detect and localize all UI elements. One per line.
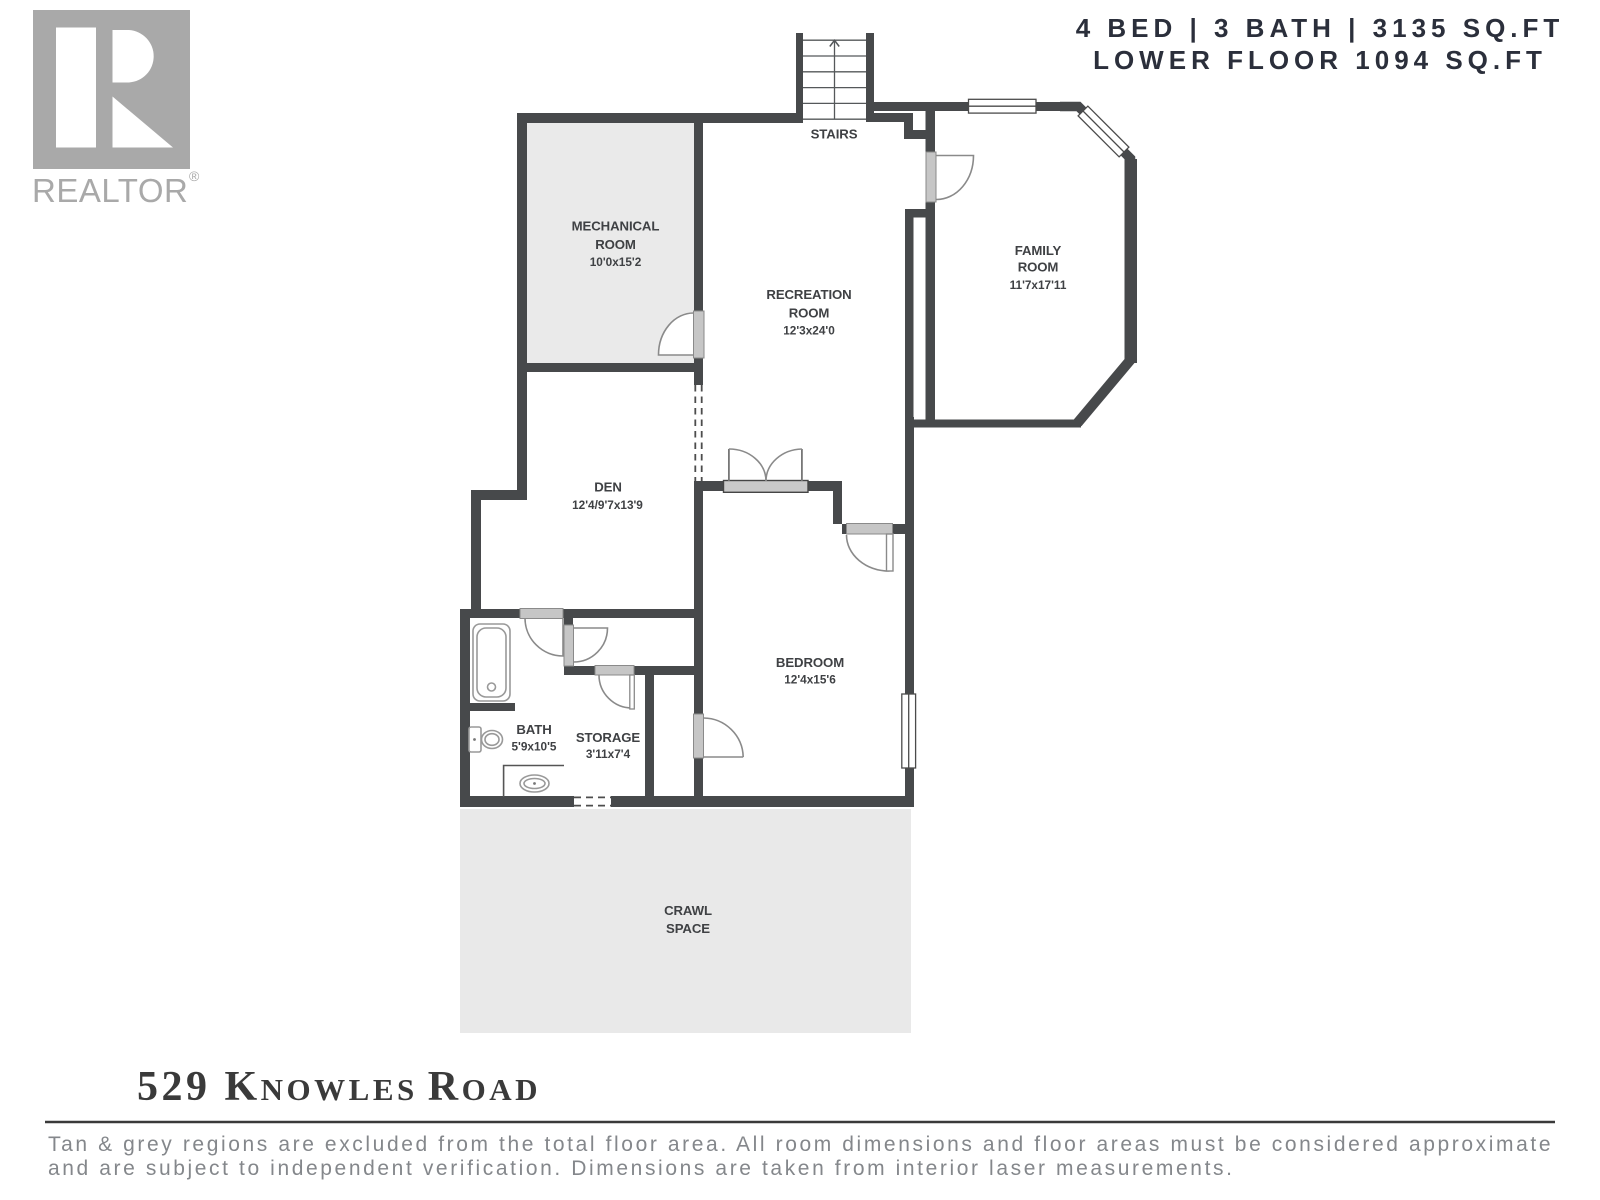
svg-text:REALTOR: REALTOR [32, 172, 188, 209]
svg-text:LOWER FLOOR 1094 SQ.FT: LOWER FLOOR 1094 SQ.FT [1093, 45, 1547, 75]
svg-text:4 BED | 3 BATH | 3135 SQ.FT: 4 BED | 3 BATH | 3135 SQ.FT [1076, 13, 1565, 43]
svg-text:ROOM: ROOM [1018, 260, 1059, 275]
svg-text:10'0x15'2: 10'0x15'2 [590, 255, 642, 269]
svg-text:ROOM: ROOM [595, 237, 636, 252]
svg-text:5'9x10'5: 5'9x10'5 [512, 739, 557, 753]
svg-text:CRAWL: CRAWL [664, 903, 712, 918]
svg-text:DEN: DEN [594, 480, 622, 495]
svg-text:BATH: BATH [516, 722, 551, 737]
svg-text:3'11x7'4: 3'11x7'4 [586, 747, 631, 761]
svg-text:STORAGE: STORAGE [576, 730, 641, 745]
svg-text:FAMILY: FAMILY [1015, 243, 1062, 258]
svg-text:Tan & grey regions are exclude: Tan & grey regions are excluded from the… [48, 1133, 1553, 1156]
svg-text:12'4x15'6: 12'4x15'6 [784, 672, 836, 686]
svg-text:BEDROOM: BEDROOM [776, 655, 844, 670]
svg-text:RECREATION: RECREATION [766, 287, 851, 302]
svg-text:and are subject to independent: and are subject to independent verificat… [48, 1157, 1235, 1180]
svg-text:MECHANICAL: MECHANICAL [572, 219, 660, 234]
svg-text:12'3x24'0: 12'3x24'0 [783, 324, 835, 338]
svg-text:ROOM: ROOM [789, 306, 830, 321]
svg-text:®: ® [189, 168, 200, 184]
svg-text:12'4/9'7x13'9: 12'4/9'7x13'9 [572, 498, 643, 512]
svg-text:11'7x17'11: 11'7x17'11 [1010, 278, 1067, 292]
svg-text:SPACE: SPACE [666, 921, 710, 936]
svg-text:STAIRS: STAIRS [811, 126, 858, 141]
